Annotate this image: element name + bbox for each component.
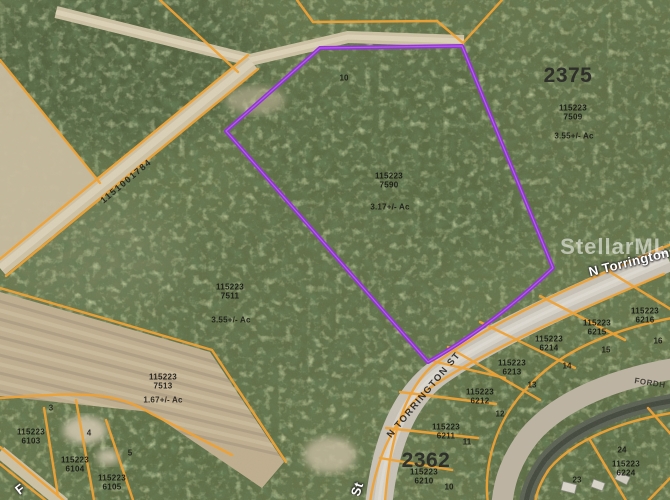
aerial-map-graphic [0,0,670,500]
aerial-parcel-map: 2375 2362 115223 7509 3.55+/- Ac 115223 … [0,0,670,500]
photo-grain [0,0,670,500]
